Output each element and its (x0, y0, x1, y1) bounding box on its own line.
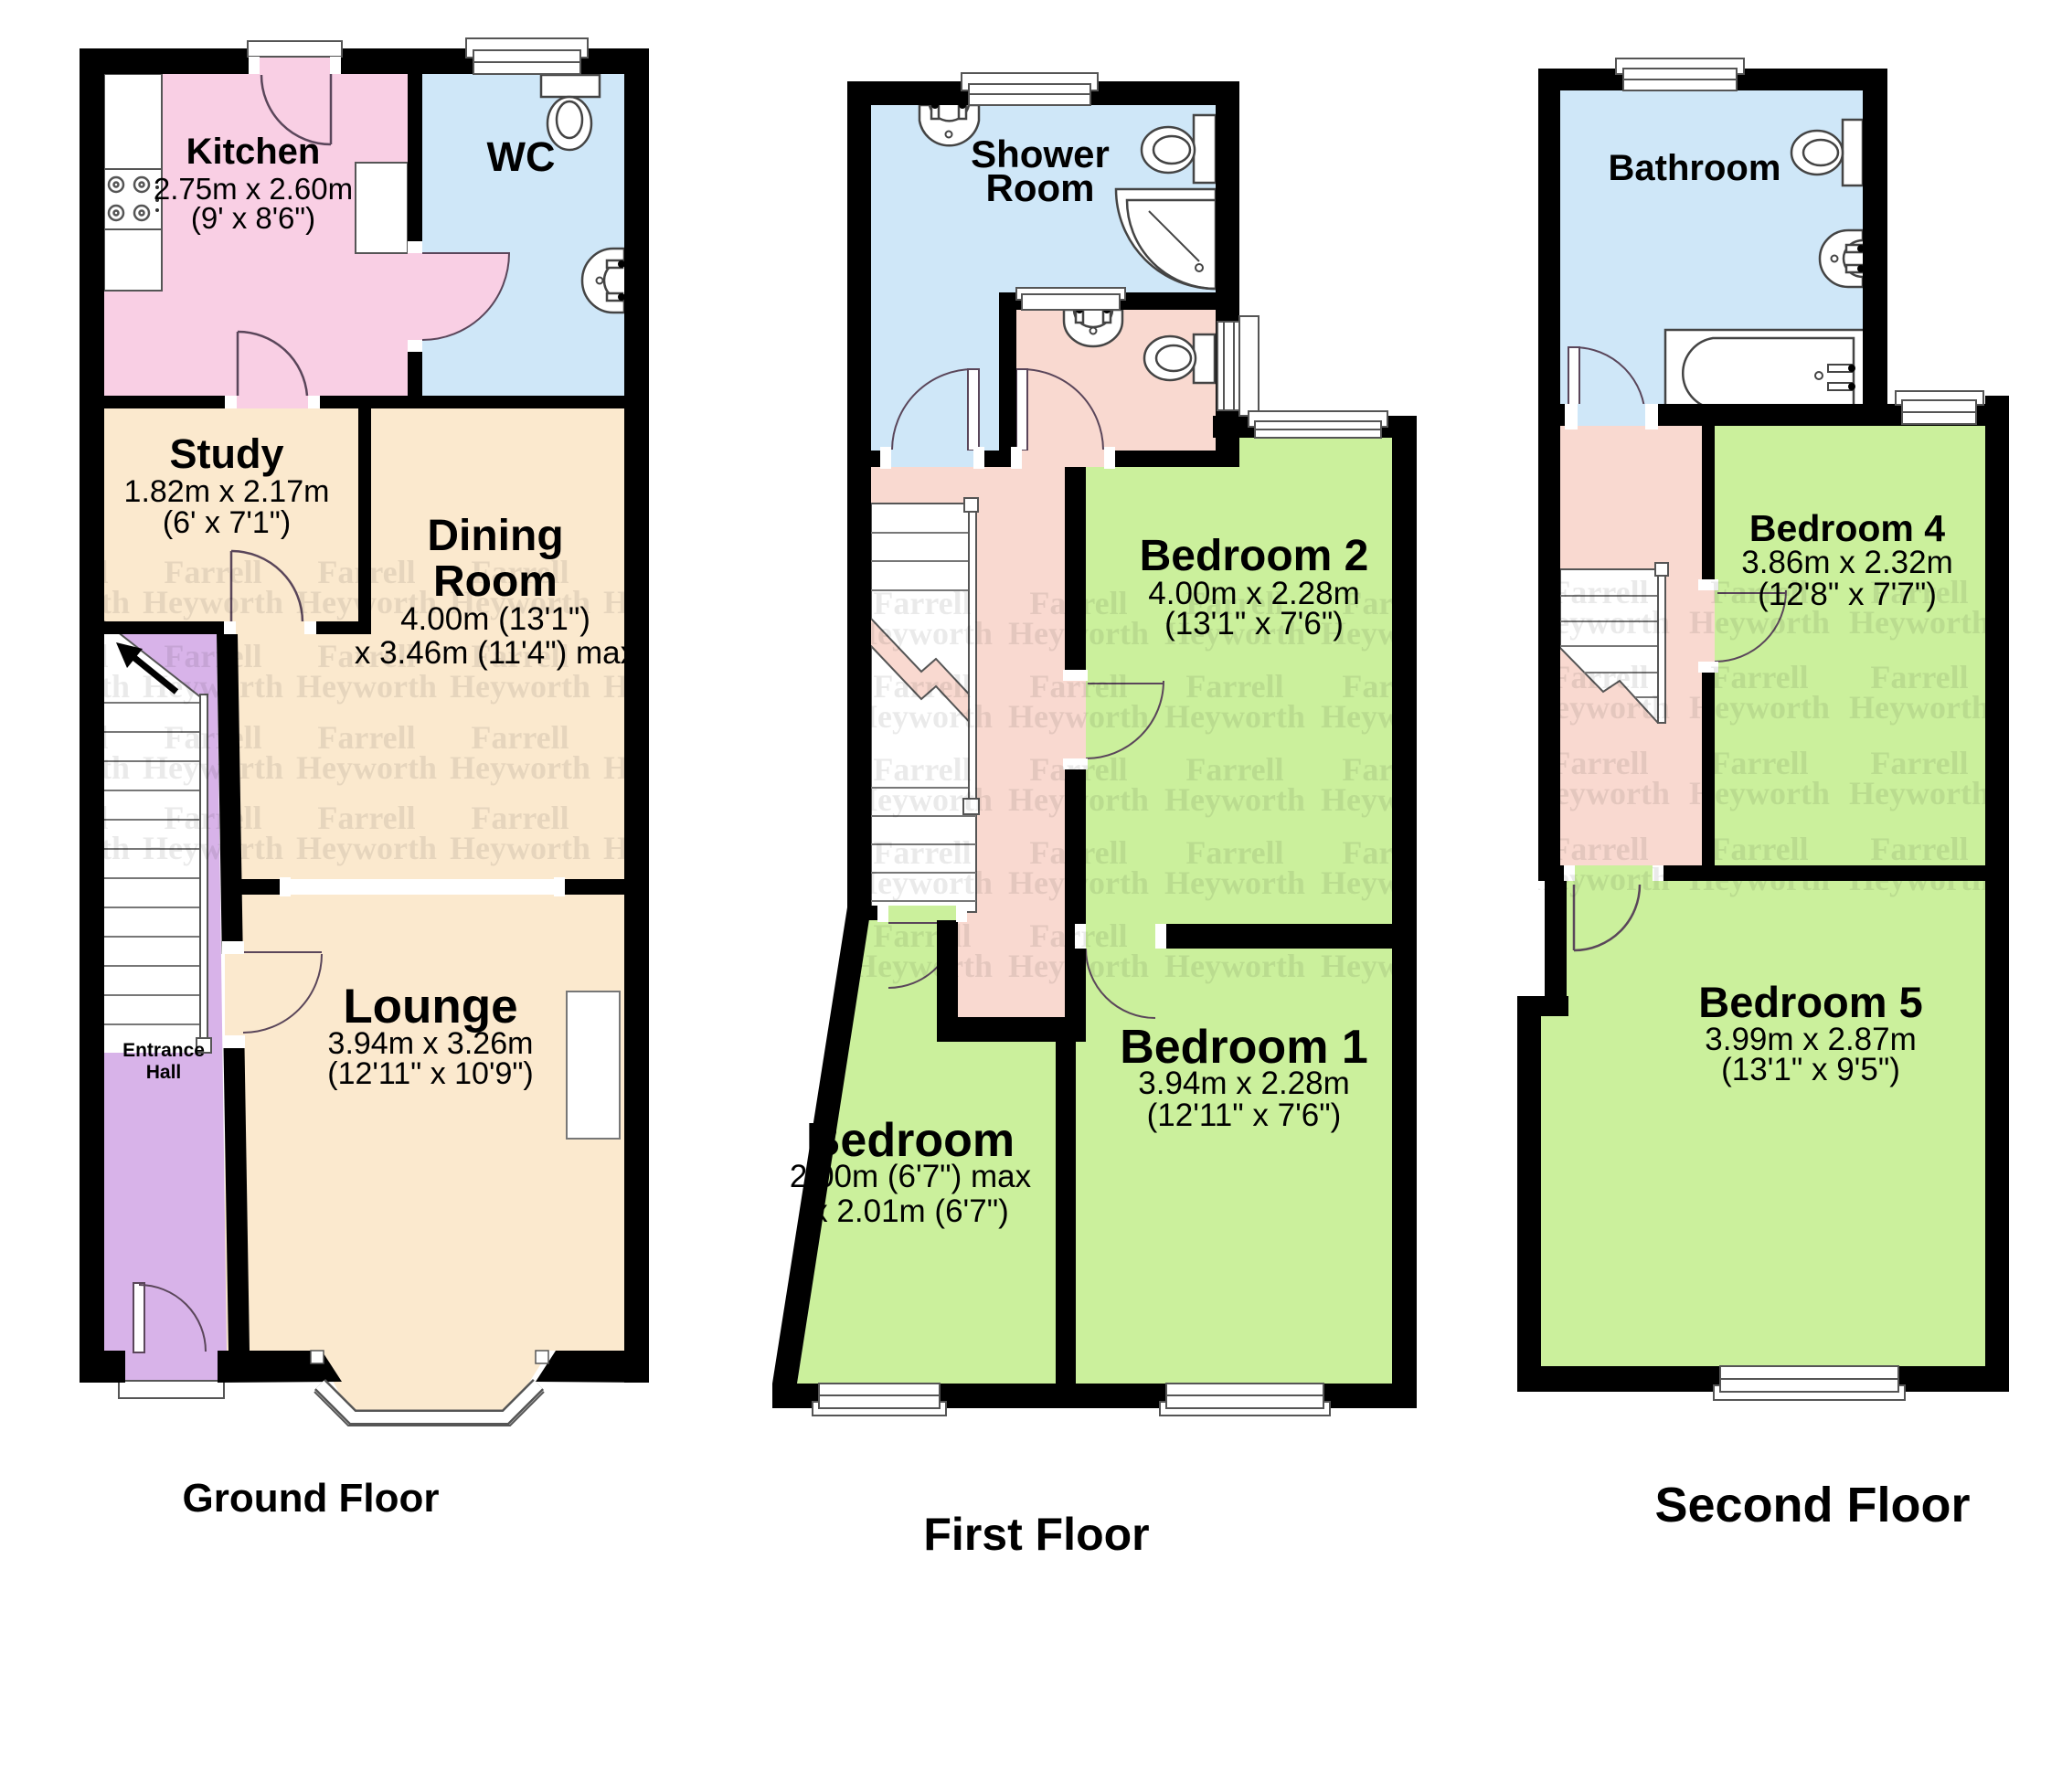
svg-text:Heyworth: Heyworth (1849, 604, 1990, 641)
svg-text:Heyworth: Heyworth (1008, 698, 1149, 735)
svg-text:Heyworth: Heyworth (1689, 775, 1830, 811)
svg-text:Second Floor: Second Floor (1654, 1478, 1970, 1532)
svg-text:Heyworth: Heyworth (450, 749, 590, 786)
svg-text:Heyworth: Heyworth (1849, 861, 1990, 897)
svg-text:WC: WC (487, 133, 556, 180)
svg-text:Bedroom 4: Bedroom 4 (1749, 507, 1945, 549)
svg-text:Heyworth: Heyworth (1008, 615, 1149, 652)
svg-text:Heyworth: Heyworth (1164, 615, 1305, 652)
svg-text:Heyworth: Heyworth (296, 584, 437, 620)
svg-text:(13'1" x 9'5"): (13'1" x 9'5") (1721, 1052, 1900, 1087)
svg-text:Ground Floor: Ground Floor (182, 1476, 439, 1521)
svg-text:Heyworth: Heyworth (1529, 689, 1670, 726)
svg-text:Hall: Hall (146, 1062, 182, 1083)
svg-text:(12'11" x 7'6"): (12'11" x 7'6") (1147, 1097, 1342, 1133)
svg-text:Bathroom: Bathroom (1609, 148, 1781, 188)
svg-text:Heyworth: Heyworth (143, 668, 283, 705)
svg-text:3.94m x 2.28m: 3.94m x 2.28m (1138, 1066, 1350, 1101)
svg-text:Heyworth: Heyworth (143, 830, 283, 866)
svg-text:Heyworth: Heyworth (1529, 775, 1670, 811)
svg-text:Heyworth: Heyworth (852, 781, 993, 818)
svg-text:Heyworth: Heyworth (852, 948, 993, 984)
svg-text:Heyworth: Heyworth (1529, 604, 1670, 641)
svg-text:Heyworth: Heyworth (852, 615, 993, 652)
svg-text:Heyworth: Heyworth (296, 749, 437, 786)
svg-text:Heyworth: Heyworth (1529, 861, 1670, 897)
svg-text:Heyworth: Heyworth (1164, 781, 1305, 818)
svg-text:Entrance: Entrance (122, 1040, 205, 1061)
svg-text:Room: Room (986, 166, 1095, 209)
svg-text:Heyworth: Heyworth (143, 584, 283, 620)
svg-text:Study: Study (169, 430, 283, 477)
svg-text:Heyworth: Heyworth (296, 668, 437, 705)
svg-text:Heyworth: Heyworth (852, 864, 993, 901)
svg-text:Heyworth: Heyworth (1164, 948, 1305, 984)
svg-text:Heyworth: Heyworth (1689, 604, 1830, 641)
svg-text:Heyworth: Heyworth (1849, 689, 1990, 726)
svg-text:Heyworth: Heyworth (450, 830, 590, 866)
svg-text:Bedroom 5: Bedroom 5 (1698, 978, 1923, 1026)
svg-text:Heyworth: Heyworth (1008, 948, 1149, 984)
svg-text:Heyworth: Heyworth (852, 698, 993, 735)
svg-text:Heyworth: Heyworth (1689, 689, 1830, 726)
svg-text:Heyworth: Heyworth (143, 749, 283, 786)
svg-text:Heyworth: Heyworth (1689, 861, 1830, 897)
svg-text:Heyworth: Heyworth (296, 830, 437, 866)
svg-text:Heyworth: Heyworth (1849, 775, 1990, 811)
svg-text:First Floor: First Floor (923, 1509, 1149, 1560)
svg-text:1.82m x 2.17m: 1.82m x 2.17m (124, 474, 330, 509)
svg-text:Heyworth: Heyworth (1164, 698, 1305, 735)
svg-text:(9' x 8'6"): (9' x 8'6") (191, 201, 315, 235)
svg-text:Heyworth: Heyworth (450, 584, 590, 620)
svg-text:Kitchen: Kitchen (186, 132, 321, 172)
svg-text:Heyworth: Heyworth (1008, 864, 1149, 901)
svg-text:Heyworth: Heyworth (450, 668, 590, 705)
svg-text:Heyworth: Heyworth (1008, 781, 1149, 818)
svg-text:(6' x 7'1"): (6' x 7'1") (163, 505, 291, 540)
svg-text:Bedroom 2: Bedroom 2 (1140, 532, 1369, 580)
svg-text:Heyworth: Heyworth (1164, 864, 1305, 901)
svg-text:(12'11" x 10'9"): (12'11" x 10'9") (327, 1056, 534, 1091)
svg-text:x 2.01m (6'7"): x 2.01m (6'7") (812, 1193, 1009, 1229)
